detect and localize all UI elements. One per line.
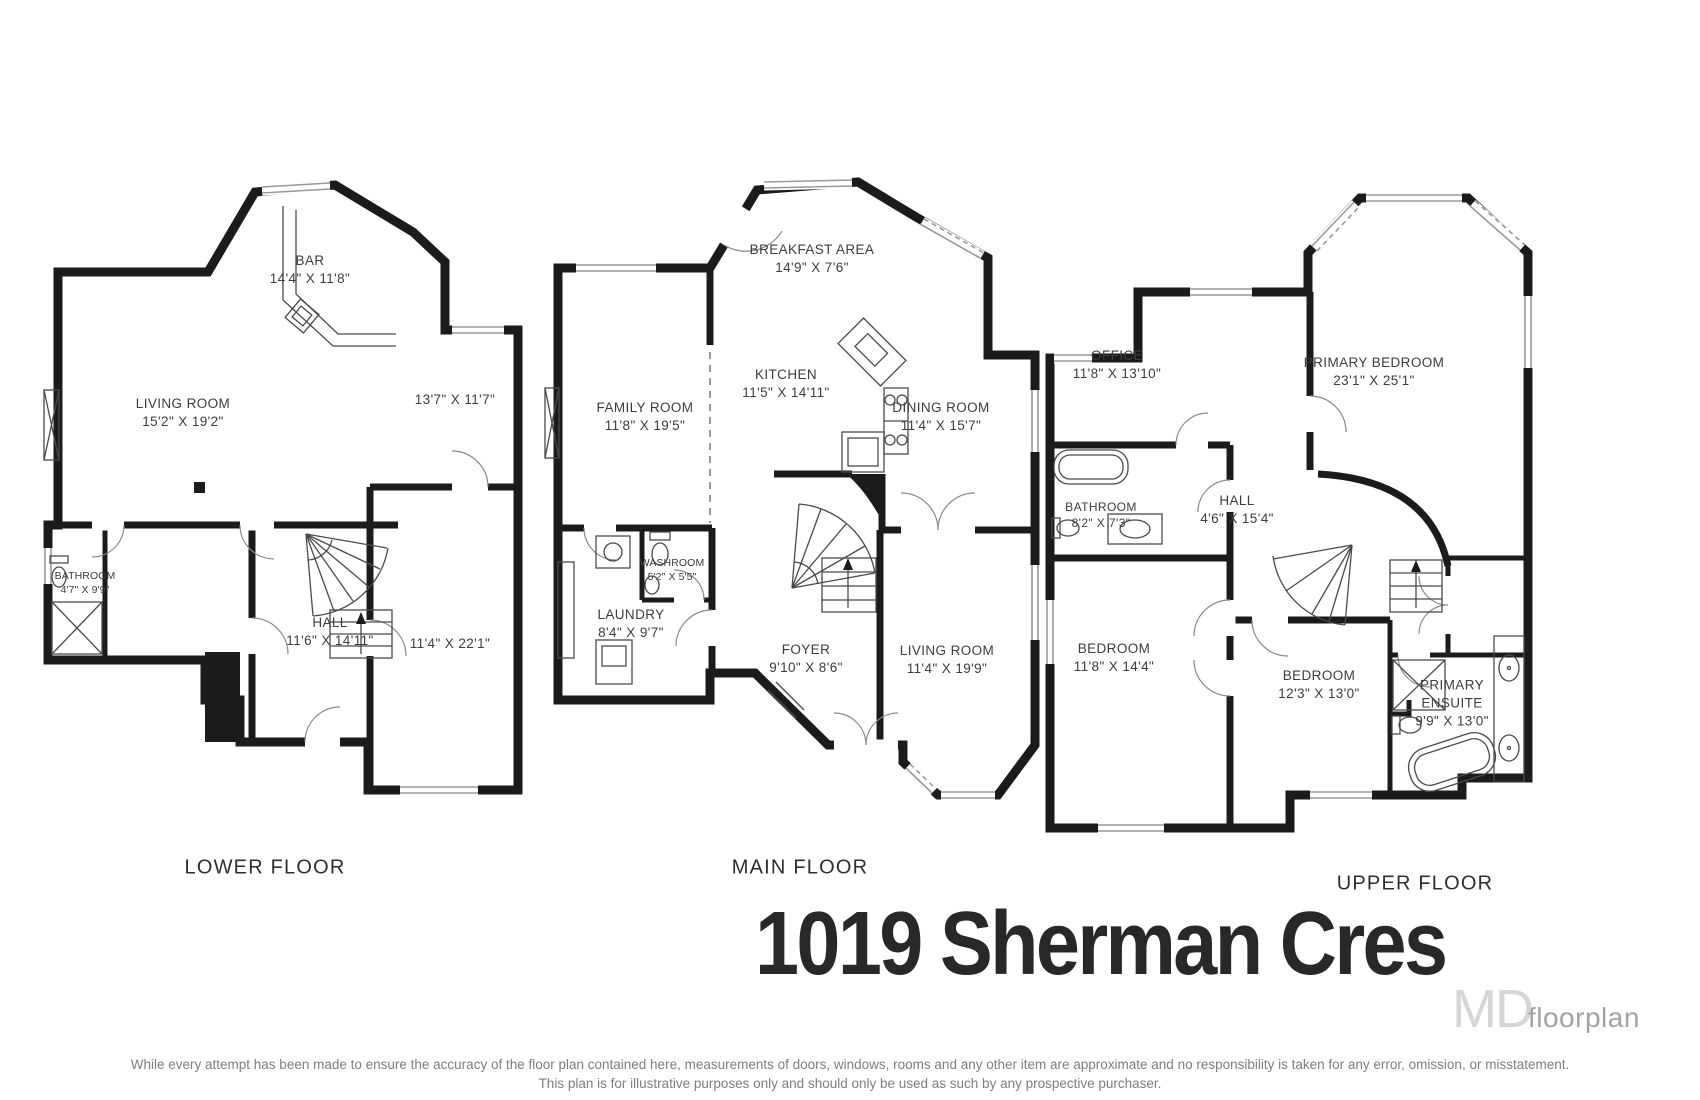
room-dims: 15'2" X 19'2" (136, 413, 230, 431)
room-dims: 9'9" X 13'0" (1404, 712, 1500, 730)
room-dims: 14'4" X 11'8" (270, 270, 351, 288)
room-label-bedroom-2: BEDROOM 12'3" X 13'0" (1278, 667, 1360, 703)
room-dims: 23'1" X 25'1" (1304, 372, 1445, 390)
floor-title-main: MAIN FLOOR (732, 857, 868, 880)
room-name: BEDROOM (1074, 640, 1155, 658)
room-label-family-room: FAMILY ROOM 11'8" X 19'5" (597, 399, 694, 435)
room-dims: 8'4" X 9'7" (597, 624, 664, 642)
room-dims: 11'4" X 15'7" (892, 417, 989, 435)
room-name: HALL (1200, 492, 1274, 510)
floorplan-page: BAR 14'4" X 11'8" LIVING ROOM 15'2" X 19… (0, 0, 1700, 1100)
room-name: DINING ROOM (892, 399, 989, 417)
room-dims: 9'10" X 8'6" (769, 659, 843, 677)
room-name: KITCHEN (742, 366, 829, 384)
room-label-washroom: WASHROOM 5'2" X 5'5" (640, 557, 705, 585)
room-label-primary-ensuite: PRIMARY ENSUITE 9'9" X 13'0" (1404, 676, 1500, 729)
room-dims: 11'4" X 19'9" (900, 660, 994, 678)
room-name: FAMILY ROOM (597, 399, 694, 417)
room-dims: 14'9" X 7'6" (750, 259, 875, 277)
page-title: 1019 Sherman Cres (755, 893, 1445, 996)
room-name: BATHROOM (1065, 500, 1137, 516)
room-dims: 11'8" X 19'5" (597, 417, 694, 435)
room-dims: 11'8" X 14'4" (1074, 658, 1155, 676)
room-label-foyer: FOYER 9'10" X 8'6" (769, 641, 843, 677)
disclaimer-line-1: While every attempt has been made to ens… (0, 1056, 1700, 1075)
room-label-bathroom-upper: BATHROOM 8'2" X 7'3" (1065, 500, 1137, 532)
room-label-office: OFFICE 11'8" X 13'10" (1073, 347, 1161, 383)
room-label-unnamed-bottom-right: 11'4" X 22'1" (410, 635, 491, 653)
room-label-dining-room: DINING ROOM 11'4" X 15'7" (892, 399, 989, 435)
room-label-laundry: LAUNDRY 8'4" X 9'7" (597, 606, 664, 642)
room-name: PRIMARY BEDROOM (1304, 354, 1445, 372)
post-icon (194, 482, 205, 493)
watermark-text: floorplan (1528, 1002, 1640, 1033)
room-label-hall-upper: HALL 4'6" X 15'4" (1200, 492, 1274, 528)
room-name: OFFICE (1073, 347, 1161, 365)
room-name: BAR (270, 252, 351, 270)
disclaimer-line-2: This plan is for illustrative purposes o… (0, 1075, 1700, 1094)
brand-watermark: MDfloorplan (1452, 978, 1640, 1040)
room-dims: 11'6" X 14'11" (286, 632, 373, 650)
room-dims: 4'7" X 9'9" (55, 584, 116, 598)
room-name: BREAKFAST AREA (750, 241, 875, 259)
disclaimer: While every attempt has been made to ens… (0, 1056, 1700, 1094)
room-label-hall-lower: HALL 11'6" X 14'11" (286, 614, 373, 650)
room-label-primary-bedroom: PRIMARY BEDROOM 23'1" X 25'1" (1304, 354, 1445, 390)
room-label-living-room-main: LIVING ROOM 11'4" X 19'9" (900, 642, 994, 678)
room-label-bedroom-1: BEDROOM 11'8" X 14'4" (1074, 640, 1155, 676)
room-dims: 5'2" X 5'5" (640, 571, 705, 585)
room-dims: 4'6" X 15'4" (1200, 510, 1274, 528)
room-name: HALL (286, 614, 373, 632)
solid-block (205, 652, 240, 742)
room-name: WASHROOM (640, 557, 705, 571)
room-label-breakfast-area: BREAKFAST AREA 14'9" X 7'6" (750, 241, 875, 277)
floor-title-lower: LOWER FLOOR (185, 857, 346, 880)
room-dims: 8'2" X 7'3" (1065, 516, 1137, 532)
room-dims: 11'5" X 14'11" (742, 384, 829, 402)
room-label-living-room-lower: LIVING ROOM 15'2" X 19'2" (136, 395, 230, 431)
room-name: LIVING ROOM (136, 395, 230, 413)
room-name: BEDROOM (1278, 667, 1360, 685)
room-name: PRIMARY ENSUITE (1404, 676, 1500, 712)
room-dims: 12'3" X 13'0" (1278, 685, 1360, 703)
room-label-bathroom-lower: BATHROOM 4'7" X 9'9" (55, 570, 116, 598)
room-name: LIVING ROOM (900, 642, 994, 660)
md-logo-icon: MD (1452, 979, 1532, 1039)
room-dims: 11'4" X 22'1" (410, 635, 491, 653)
room-name: FOYER (769, 641, 843, 659)
room-name: LAUNDRY (597, 606, 664, 624)
room-label-kitchen: KITCHEN 11'5" X 14'11" (742, 366, 829, 402)
room-dims: 11'8" X 13'10" (1073, 365, 1161, 383)
room-label-unnamed-top-right: 13'7" X 11'7" (415, 391, 496, 409)
room-label-bar: BAR 14'4" X 11'8" (270, 252, 351, 288)
room-name: BATHROOM (55, 570, 116, 584)
room-dims: 13'7" X 11'7" (415, 391, 496, 409)
